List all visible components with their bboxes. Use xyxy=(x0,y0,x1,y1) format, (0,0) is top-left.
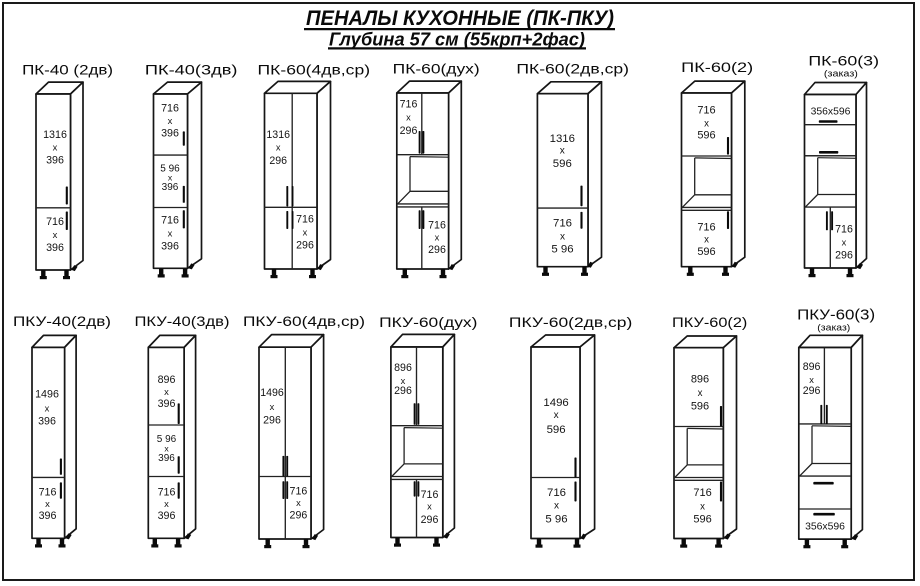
svg-text:Глубина 57 см (55крп+2фас): Глубина 57 см (55крп+2фас) xyxy=(329,28,585,49)
svg-text:ПКУ-40(2дв): ПКУ-40(2дв) xyxy=(13,313,111,329)
svg-text:x: x xyxy=(45,498,50,509)
svg-text:716: 716 xyxy=(161,103,179,115)
svg-text:356x596: 356x596 xyxy=(805,521,845,532)
svg-text:(заказ): (заказ) xyxy=(824,69,858,79)
svg-text:296: 296 xyxy=(263,414,281,426)
svg-text:296: 296 xyxy=(290,509,308,521)
svg-text:396: 396 xyxy=(162,182,179,193)
svg-text:ПКУ-60(4дв,ср): ПКУ-60(4дв,ср) xyxy=(243,313,365,329)
svg-text:716: 716 xyxy=(290,485,308,497)
svg-text:x: x xyxy=(700,502,705,513)
svg-text:ПК-60(дух): ПК-60(дух) xyxy=(393,61,480,77)
svg-text:x: x xyxy=(560,146,565,157)
svg-text:716: 716 xyxy=(46,216,64,228)
svg-text:ПК-40(3дв): ПК-40(3дв) xyxy=(145,62,238,78)
svg-text:x: x xyxy=(164,498,169,509)
svg-text:x: x xyxy=(406,113,411,123)
svg-text:5 96: 5 96 xyxy=(545,513,567,525)
svg-text:716: 716 xyxy=(697,105,715,117)
svg-text:716: 716 xyxy=(835,223,853,235)
svg-text:ПК-60(3): ПК-60(3) xyxy=(808,53,879,69)
svg-text:716: 716 xyxy=(296,214,314,226)
svg-text:396: 396 xyxy=(158,453,175,464)
svg-text:x: x xyxy=(168,173,173,183)
svg-text:1316: 1316 xyxy=(43,129,67,141)
svg-text:896: 896 xyxy=(691,374,709,386)
svg-text:396: 396 xyxy=(158,398,176,410)
svg-text:596: 596 xyxy=(697,246,715,258)
svg-text:x: x xyxy=(53,229,58,240)
svg-text:x: x xyxy=(427,502,432,512)
svg-text:896: 896 xyxy=(803,361,821,373)
svg-text:596: 596 xyxy=(547,424,566,436)
svg-text:x: x xyxy=(164,444,169,454)
svg-text:x: x xyxy=(704,119,709,130)
svg-text:396: 396 xyxy=(158,510,176,522)
svg-text:896: 896 xyxy=(394,362,412,374)
svg-text:ПК-60(4дв,ср): ПК-60(4дв,ср) xyxy=(258,62,371,78)
svg-text:x: x xyxy=(809,375,814,385)
svg-text:716: 716 xyxy=(161,215,179,227)
svg-text:596: 596 xyxy=(691,401,709,413)
svg-text:ПКУ-60(дух): ПКУ-60(дух) xyxy=(379,314,477,330)
svg-text:296: 296 xyxy=(421,514,439,526)
svg-text:ПКУ-60(2): ПКУ-60(2) xyxy=(672,314,747,330)
svg-text:296: 296 xyxy=(394,385,412,397)
svg-text:396: 396 xyxy=(46,154,64,166)
svg-text:x: x xyxy=(296,498,301,508)
svg-text:5 96: 5 96 xyxy=(551,243,573,255)
svg-text:396: 396 xyxy=(38,416,56,428)
svg-text:x: x xyxy=(53,141,58,152)
svg-text:ПКУ-60(3): ПКУ-60(3) xyxy=(797,307,875,324)
svg-text:ПК-60(2дв,ср): ПК-60(2дв,ср) xyxy=(516,61,629,77)
svg-text:x: x xyxy=(45,403,50,414)
svg-text:x: x xyxy=(164,386,169,397)
svg-text:ПЕНАЛЫ КУХОННЫЕ (ПК-ПКУ): ПЕНАЛЫ КУХОННЫЕ (ПК-ПКУ) xyxy=(306,6,614,30)
svg-text:296: 296 xyxy=(835,250,853,262)
svg-text:356x596: 356x596 xyxy=(811,107,851,118)
svg-text:296: 296 xyxy=(400,125,418,137)
svg-text:396: 396 xyxy=(161,241,179,253)
svg-text:716: 716 xyxy=(697,222,715,234)
svg-text:296: 296 xyxy=(269,155,287,167)
svg-text:x: x xyxy=(560,232,565,243)
svg-text:596: 596 xyxy=(553,158,572,170)
svg-text:1496: 1496 xyxy=(543,397,568,409)
svg-text:716: 716 xyxy=(428,220,446,232)
svg-text:596: 596 xyxy=(697,130,715,142)
svg-text:716: 716 xyxy=(400,99,418,111)
svg-text:296: 296 xyxy=(803,385,821,397)
svg-text:x: x xyxy=(704,235,709,246)
svg-text:ПКУ-40(3дв): ПКУ-40(3дв) xyxy=(135,313,230,329)
svg-text:1316: 1316 xyxy=(266,129,290,141)
svg-text:x: x xyxy=(270,402,275,412)
svg-text:896: 896 xyxy=(158,374,176,386)
svg-text:x: x xyxy=(554,501,559,512)
svg-text:x: x xyxy=(698,388,703,399)
svg-text:ПКУ-60(2дв,ср): ПКУ-60(2дв,ср) xyxy=(509,314,632,330)
svg-text:x: x xyxy=(303,228,308,238)
svg-text:716: 716 xyxy=(421,489,439,501)
svg-text:296: 296 xyxy=(296,240,314,252)
svg-text:596: 596 xyxy=(693,514,711,526)
svg-text:1496: 1496 xyxy=(35,388,59,400)
svg-text:296: 296 xyxy=(428,244,446,256)
svg-text:ПК-60(2): ПК-60(2) xyxy=(681,59,753,75)
svg-text:x: x xyxy=(435,233,440,243)
svg-text:1496: 1496 xyxy=(260,387,284,399)
svg-text:ПК-40 (2дв): ПК-40 (2дв) xyxy=(22,62,113,78)
svg-text:x: x xyxy=(276,143,281,153)
svg-text:396: 396 xyxy=(39,510,57,522)
svg-text:396: 396 xyxy=(46,242,64,254)
svg-text:x: x xyxy=(168,228,173,239)
svg-text:x: x xyxy=(842,237,847,247)
svg-text:(заказ): (заказ) xyxy=(817,323,850,333)
svg-text:716: 716 xyxy=(547,487,566,499)
svg-text:1316: 1316 xyxy=(550,133,575,145)
svg-text:396: 396 xyxy=(161,128,179,140)
svg-text:x: x xyxy=(168,115,173,126)
svg-text:x: x xyxy=(554,410,559,421)
svg-text:716: 716 xyxy=(553,218,572,230)
svg-text:716: 716 xyxy=(693,487,711,499)
